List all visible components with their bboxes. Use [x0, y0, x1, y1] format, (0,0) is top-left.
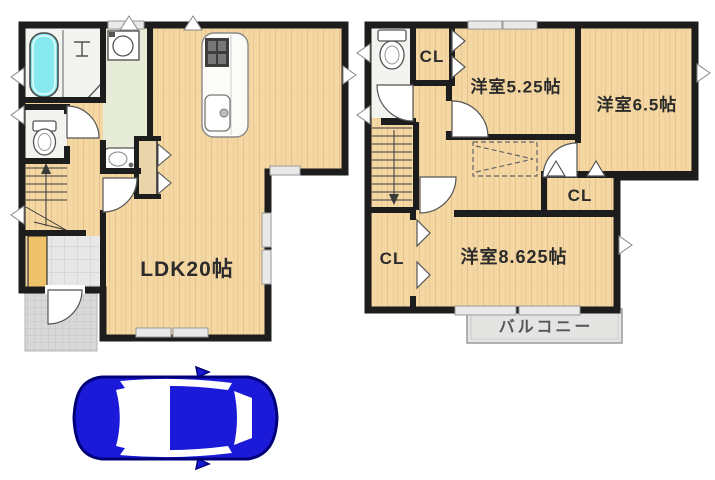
entrance-genkan — [47, 236, 100, 290]
car-icon — [74, 367, 277, 469]
closet-label-mid: CL — [568, 186, 593, 206]
shoe-cabinet — [28, 236, 47, 288]
room-label-65: 洋室6.5帖 — [597, 91, 678, 116]
floor-plan-canvas: LDK20帖 洋室5.25帖 洋室6.5帖 洋室8.625帖 CL CL CL … — [0, 0, 715, 480]
floor-plan-drawing — [0, 0, 715, 480]
toilet-room-1f — [25, 107, 67, 160]
closet-label-top: CL — [420, 47, 445, 67]
washing-machine-icon — [108, 31, 139, 60]
toilet-icon — [378, 30, 406, 69]
stove-icon — [205, 38, 229, 67]
room-label-8625: 洋室8.625帖 — [460, 243, 567, 269]
washbasin-icon — [105, 148, 138, 170]
closet-label-left: CL — [380, 249, 405, 269]
toilet-icon — [33, 121, 56, 155]
bathtub-icon — [30, 33, 58, 97]
room-label-ldk: LDK20帖 — [140, 253, 234, 283]
floor2-plan — [357, 21, 710, 343]
kitchen-sink-icon — [205, 95, 230, 131]
kitchen-counter — [202, 33, 248, 137]
room-label-525: 洋室5.25帖 — [470, 73, 561, 98]
balcony-label: バルコニー — [499, 313, 594, 337]
floor1-plan — [11, 16, 356, 351]
bathroom — [25, 28, 103, 100]
